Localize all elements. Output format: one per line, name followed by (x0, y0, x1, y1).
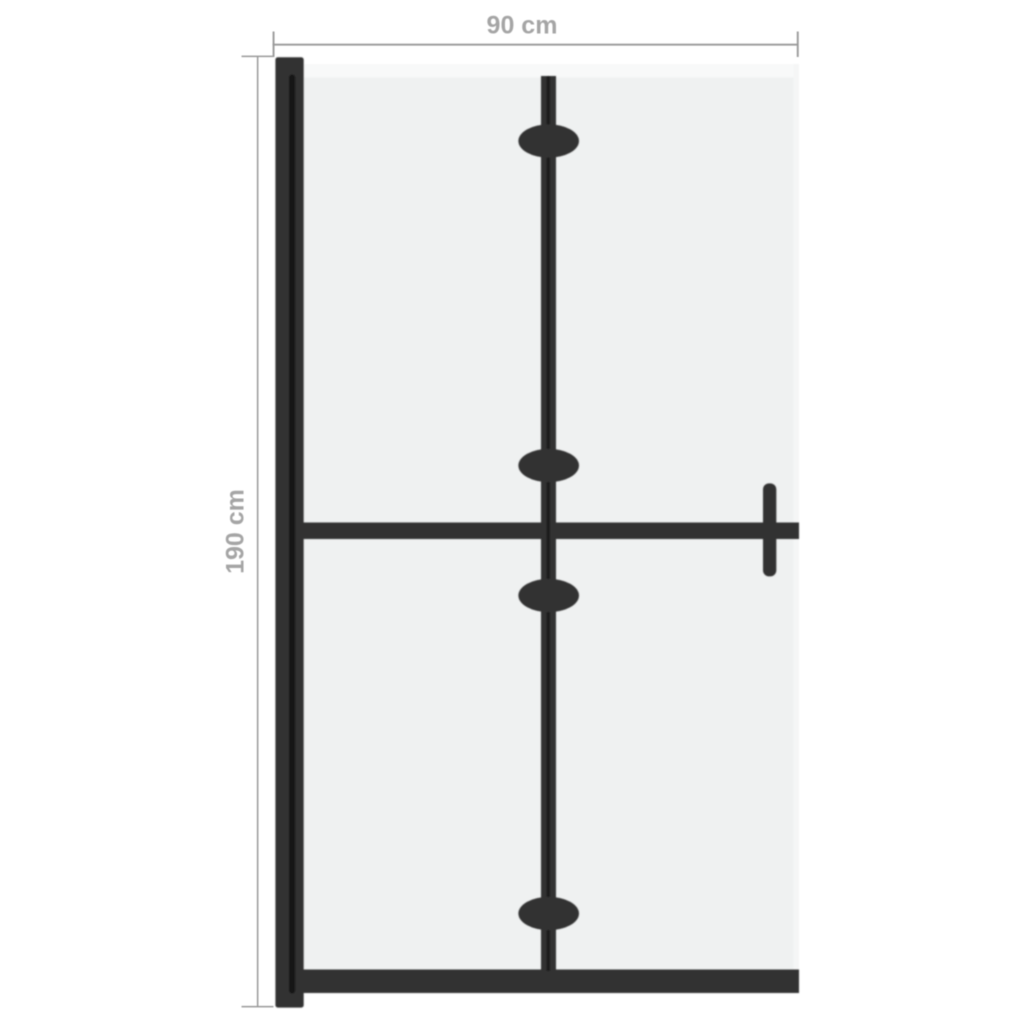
svg-text:90 cm: 90 cm (487, 12, 558, 40)
svg-text:190 cm: 190 cm (222, 489, 250, 574)
